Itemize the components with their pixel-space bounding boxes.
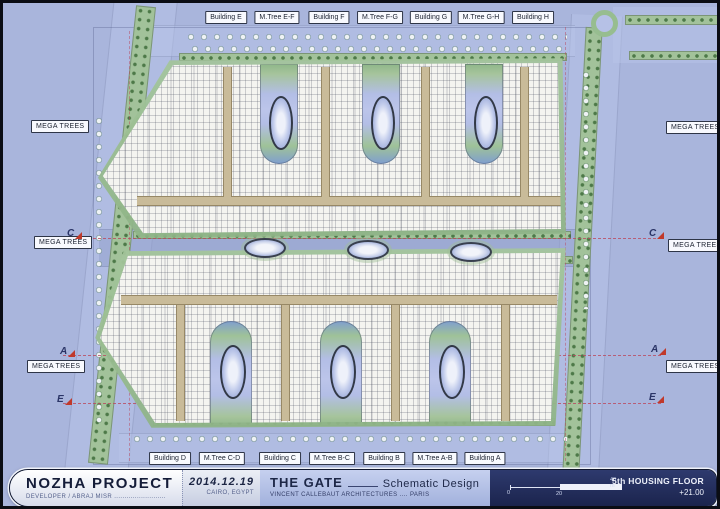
drawing-title: THE GATE	[270, 475, 343, 490]
plaza-ellipse	[347, 240, 389, 260]
median-top-right-2	[629, 51, 720, 60]
mtree-label: M.Tree F-G	[357, 11, 403, 24]
section-marker-c-left: C	[67, 229, 82, 239]
corridor-vertical	[520, 67, 529, 197]
courtyard	[362, 64, 400, 164]
project-name: NOZHA PROJECT	[26, 475, 182, 492]
section-marker-c-right: C	[649, 229, 664, 239]
title-block: NOZHA PROJECT DEVELOPER / ABRAJ MISR ...…	[9, 469, 717, 507]
title-block-project-section: NOZHA PROJECT DEVELOPER / ABRAJ MISR ...…	[10, 470, 182, 506]
section-arrow-icon	[65, 398, 72, 405]
mega-trees-label: MEGA TREES	[666, 121, 720, 134]
building-label: Building H	[512, 11, 554, 24]
pool-ellipse	[371, 96, 395, 150]
section-letter: C	[649, 229, 656, 239]
site-plan-canvas: Building E M.Tree E-F Building F M.Tree …	[0, 0, 720, 509]
tree-column-left	[94, 115, 105, 427]
building-label: Building A	[464, 452, 505, 465]
section-marker-e-left: E	[57, 395, 72, 405]
mega-trees-label: MEGA TREES	[27, 360, 85, 373]
mtree-label: M.Tree G-H	[458, 11, 505, 24]
developer-line: DEVELOPER / ABRAJ MISR .................…	[26, 494, 182, 500]
mtree-label: M.Tree C-D	[199, 452, 245, 465]
courtyard	[320, 321, 362, 427]
building-label: Building G	[410, 11, 452, 24]
mega-trees-label: MEGA TREES	[31, 120, 89, 133]
title-block-right-section: 0 20 40 m 5th HOUSING FLOOR +21.00	[490, 470, 716, 506]
pool-ellipse	[474, 96, 498, 150]
grid-line-left	[129, 31, 130, 461]
building-block-lower	[95, 251, 565, 427]
drawing-date: 2014.12.19	[183, 476, 254, 488]
corridor-vertical	[281, 305, 290, 421]
corridor-vertical	[176, 305, 185, 421]
section-arrow-icon	[659, 348, 666, 355]
section-letter: A	[60, 347, 67, 357]
scale-bar: 0 20 40 m	[510, 478, 622, 498]
section-arrow-icon	[68, 350, 75, 357]
scale-label-zero: 0	[507, 491, 510, 497]
plaza-ellipse	[244, 238, 286, 258]
section-arrow-icon	[657, 232, 664, 239]
tree-row-bottom	[131, 434, 567, 445]
section-letter: E	[649, 393, 656, 403]
section-marker-a-left: A	[60, 347, 75, 357]
section-arrow-icon	[657, 396, 664, 403]
courtyard	[260, 64, 298, 164]
pool-ellipse	[220, 345, 246, 399]
mtree-label: M.Tree E-F	[254, 11, 299, 24]
pool-ellipse	[330, 345, 356, 399]
grid-line-right	[565, 27, 566, 461]
pool-ellipse	[439, 345, 465, 399]
corridor-vertical	[391, 305, 400, 421]
title-block-title-section: THE GATE Schematic Design VINCENT CALLEB…	[260, 470, 490, 506]
building-block-upper	[101, 59, 569, 235]
mtree-label: M.Tree B-C	[309, 452, 355, 465]
sheet-label: 5th HOUSING FLOOR	[612, 476, 704, 486]
scale-label-mid: 20	[556, 492, 562, 498]
section-marker-e-right: E	[649, 393, 664, 403]
section-letter: C	[67, 229, 74, 239]
section-letter: A	[651, 345, 658, 355]
corridor-vertical	[501, 305, 510, 421]
corridor-horizontal	[121, 295, 557, 305]
pool-ellipse	[269, 96, 293, 150]
tree-row-top-2	[189, 44, 567, 55]
building-label: Building E	[205, 11, 247, 24]
section-letter: E	[57, 395, 64, 405]
median-top-right-1	[625, 15, 720, 25]
section-arrow-icon	[75, 232, 82, 239]
section-line-c	[63, 238, 661, 239]
building-label: Building D	[149, 452, 191, 465]
building-label: Building F	[308, 11, 349, 24]
corridor-vertical	[223, 67, 232, 197]
scale-tick	[510, 485, 511, 490]
courtyard	[429, 321, 471, 427]
floor-elevation: +21.00	[612, 488, 704, 497]
building-label: Building B	[363, 452, 405, 465]
roundabout	[591, 10, 618, 37]
mtree-label: M.Tree A-B	[412, 452, 457, 465]
corridor-vertical	[321, 67, 330, 197]
title-block-date-section: 2014.12.19 CAIRO, EGYPT	[182, 470, 260, 506]
mega-trees-label: MEGA TREES	[34, 236, 92, 249]
tree-column-right	[581, 69, 592, 309]
corridor-horizontal	[137, 196, 561, 206]
courtyard	[210, 321, 252, 427]
scale-bar-thin-line	[510, 487, 560, 488]
leader-line	[348, 486, 378, 487]
plaza-ellipse	[450, 242, 492, 262]
courtyard	[465, 64, 503, 164]
building-label: Building C	[259, 452, 301, 465]
project-location: CAIRO, EGYPT	[183, 490, 254, 496]
corridor-vertical	[421, 67, 430, 197]
mega-trees-label: MEGA TREES	[668, 239, 720, 252]
mega-trees-label: MEGA TREES	[666, 360, 720, 373]
design-phase: Schematic Design	[383, 478, 480, 490]
tree-row-top-1	[185, 32, 567, 43]
section-marker-a-right: A	[651, 345, 666, 355]
architect-line: VINCENT CALLEBAUT ARCHITECTURES .... PAR…	[270, 492, 490, 498]
